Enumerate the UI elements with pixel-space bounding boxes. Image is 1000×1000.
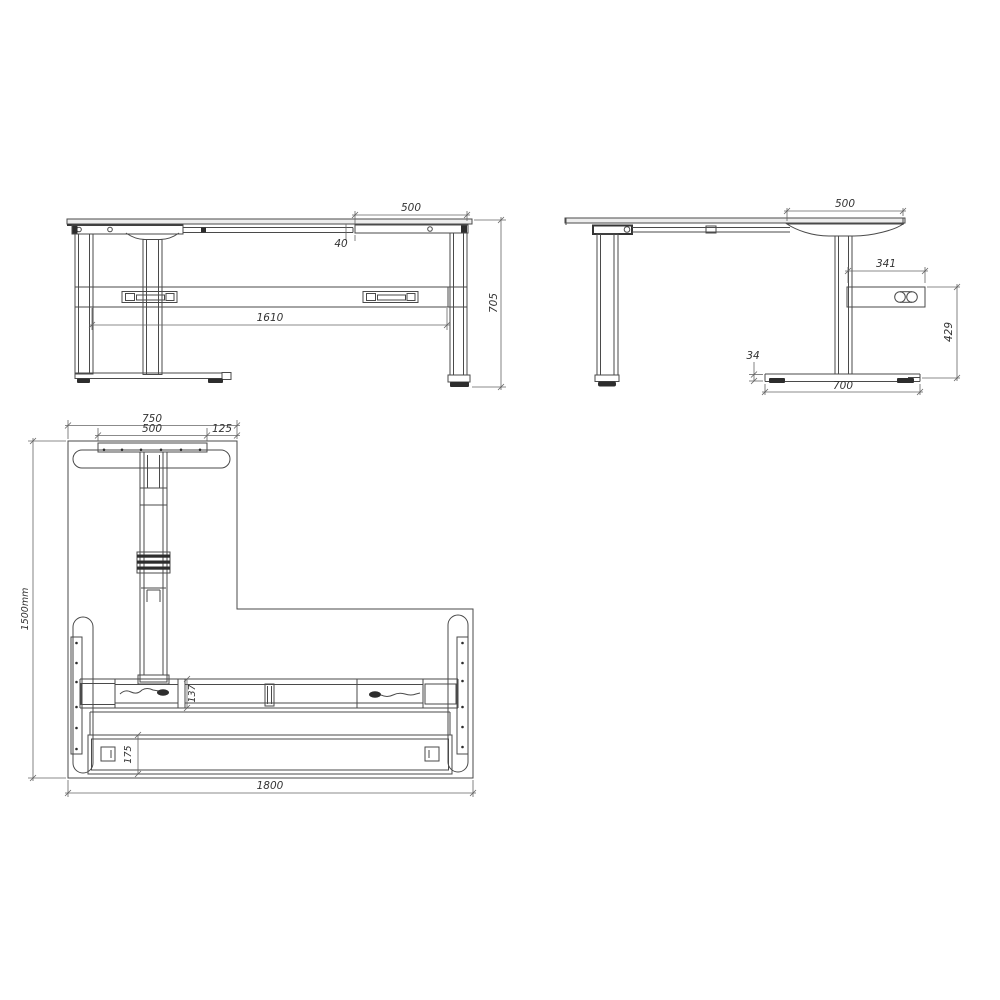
dim-label-front-40: 40 bbox=[334, 238, 348, 250]
foot-right-front bbox=[448, 375, 470, 387]
control-box bbox=[847, 287, 925, 307]
dim-label-plan-125: 125 bbox=[212, 423, 232, 435]
dim-label-plan-175: 175 bbox=[123, 745, 134, 763]
desktop-support-plate bbox=[787, 224, 903, 236]
stretcher-bracket-right bbox=[425, 747, 439, 761]
leg-right-front bbox=[450, 233, 467, 375]
dim-plan-depth: 1500mm bbox=[20, 438, 66, 781]
wing-column-plan bbox=[137, 452, 170, 684]
leg-left-front bbox=[75, 234, 93, 374]
desktop-outline-plan bbox=[68, 441, 473, 778]
desk-frame-drawing: 500 40 1610 705 bbox=[0, 0, 1000, 1000]
dim-label-front-1610: 1610 bbox=[257, 312, 284, 324]
dim-side-control-box-height: 429 bbox=[922, 284, 960, 381]
dim-plan-beam-depth: 137 bbox=[184, 676, 198, 711]
dim-front-height: 705 bbox=[472, 217, 506, 390]
column-coupler bbox=[137, 552, 170, 573]
dim-label-plan-137: 137 bbox=[187, 684, 198, 702]
cable-right bbox=[369, 691, 420, 697]
dim-label-plan-1500mm: 1500mm bbox=[20, 588, 31, 631]
cable-tray-left bbox=[122, 292, 177, 303]
dim-label-plan-1800: 1800 bbox=[257, 780, 284, 792]
dim-plan-width: 1800 bbox=[65, 780, 476, 797]
column-bracket bbox=[141, 588, 166, 602]
stretcher-plan bbox=[88, 712, 452, 774]
leg-right-side bbox=[835, 236, 852, 374]
dim-label-side-34: 34 bbox=[746, 350, 759, 362]
power-socket-icon bbox=[895, 292, 918, 303]
dim-side-foot-thickness: 34 bbox=[746, 350, 763, 384]
dim-label-side-500: 500 bbox=[835, 198, 855, 210]
mounting-rail-left bbox=[72, 225, 183, 234]
crossbar-front bbox=[75, 287, 467, 307]
crossbar-plan bbox=[80, 679, 458, 708]
left-foot-plan bbox=[71, 617, 93, 773]
mounting-bracket-side-left bbox=[593, 226, 790, 235]
dim-label-side-429: 429 bbox=[943, 322, 955, 342]
dim-label-front-705: 705 bbox=[488, 293, 500, 313]
dim-label-side-341: 341 bbox=[876, 258, 896, 270]
plan-view: 750 500 125 1500mm 1800 bbox=[20, 413, 476, 797]
cable-left bbox=[120, 689, 169, 696]
desktop-front bbox=[67, 219, 472, 225]
dim-label-plan-500: 500 bbox=[142, 423, 162, 435]
leg-left-side bbox=[595, 234, 619, 387]
cable-tray-right bbox=[363, 292, 418, 303]
technical-drawing-page: 500 40 1610 705 bbox=[0, 0, 1000, 1000]
side-view: 500 341 429 34 bbox=[565, 198, 960, 395]
mounting-rail-right bbox=[355, 225, 468, 233]
dim-label-side-700: 700 bbox=[833, 380, 853, 392]
dim-side-control-box-width: 341 bbox=[845, 258, 928, 283]
stretcher-bracket-left bbox=[101, 747, 115, 761]
wing-foot-plan bbox=[73, 443, 230, 468]
dim-label-front-500: 500 bbox=[401, 202, 421, 214]
front-view: 500 40 1610 705 bbox=[67, 202, 506, 390]
